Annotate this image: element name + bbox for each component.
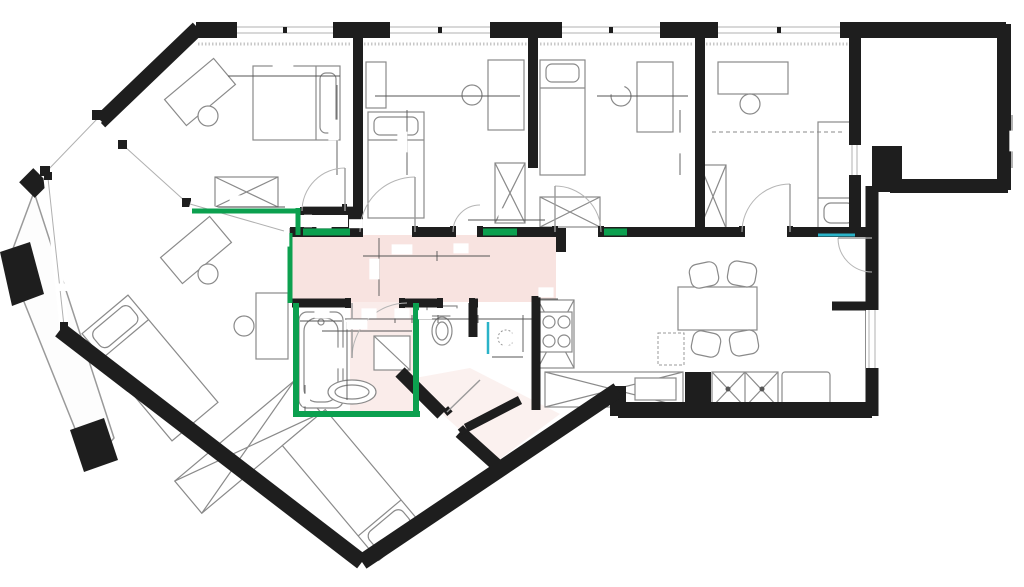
chair	[234, 316, 254, 336]
dimension-label	[277, 263, 287, 278]
chair	[740, 94, 760, 114]
floor-plan-page	[0, 0, 1024, 587]
pillow	[546, 64, 579, 82]
chair	[688, 260, 720, 289]
pillow	[374, 117, 418, 135]
corridor-highlight	[290, 235, 556, 302]
dimension-label	[418, 310, 432, 319]
dining-furniture	[658, 260, 760, 365]
window	[866, 310, 879, 368]
window	[562, 22, 660, 38]
desk	[718, 62, 788, 94]
desk	[161, 216, 232, 283]
dimension-label	[304, 215, 312, 228]
kitchen-wall-block	[685, 372, 711, 408]
dimension-label	[604, 84, 625, 94]
dining-table	[678, 287, 757, 330]
dimension-label	[453, 243, 468, 253]
chair	[690, 329, 722, 358]
window	[718, 22, 840, 38]
dimension-label	[397, 132, 407, 153]
dimension-label	[347, 319, 368, 329]
dimension-label	[538, 287, 553, 297]
toilet	[432, 317, 452, 345]
balcony-glazing	[40, 110, 284, 330]
dimension-label	[302, 394, 310, 407]
dimension-label	[316, 218, 331, 228]
room1-furniture	[165, 58, 340, 207]
dimension-label	[335, 348, 345, 369]
window	[849, 145, 861, 175]
chair	[726, 260, 758, 288]
room4-furniture	[700, 62, 860, 228]
hall-dashed-circle	[498, 330, 514, 346]
dimension-label	[361, 308, 376, 318]
dimension-label	[328, 120, 338, 141]
dimension-label	[500, 345, 515, 355]
dimension-label	[498, 208, 513, 218]
dimension-label	[512, 323, 522, 344]
dimension-label	[320, 195, 341, 205]
dimension-label	[56, 283, 84, 291]
dimension-label	[394, 308, 409, 318]
cabinet	[366, 62, 386, 108]
dimension-label	[497, 308, 512, 318]
chair	[198, 264, 218, 284]
chair	[728, 329, 760, 357]
dimension-label	[392, 244, 413, 254]
washing-machine	[782, 372, 830, 407]
dimension-label	[767, 120, 788, 130]
dimension-label	[437, 84, 458, 94]
dimension-label	[349, 219, 363, 228]
window	[237, 22, 333, 38]
chair	[462, 85, 482, 105]
counter-sink	[635, 378, 676, 400]
desk	[488, 60, 524, 130]
desk	[637, 62, 673, 132]
dimension-label	[279, 231, 289, 246]
dimension-label	[450, 308, 465, 318]
dimension-label	[369, 259, 379, 280]
floor-plan-canvas	[0, 0, 1024, 587]
dimension-label	[1009, 131, 1019, 152]
dashed-cabinet	[658, 333, 684, 365]
desk	[256, 293, 288, 359]
dimension-label	[671, 133, 681, 154]
dimension-label	[273, 64, 294, 74]
chair	[198, 106, 218, 126]
dimension-label	[314, 308, 329, 318]
window	[390, 22, 490, 38]
dimension-label	[230, 195, 251, 205]
loggia-wall-block	[872, 146, 902, 192]
dimension-label	[791, 392, 821, 400]
